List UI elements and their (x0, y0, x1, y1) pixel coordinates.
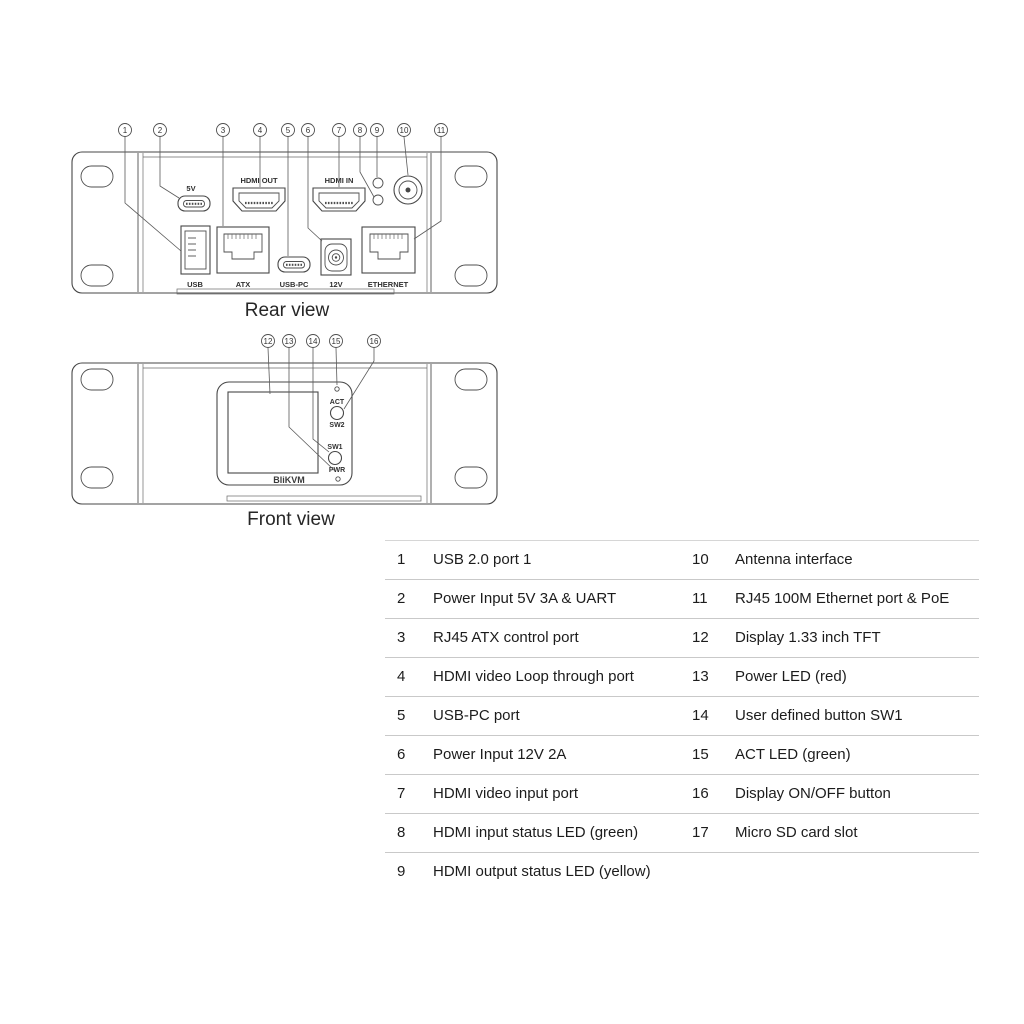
svg-text:1: 1 (123, 126, 128, 135)
display-module: BliKVM ACT SW2 SW1 PWR (217, 382, 352, 485)
legend-num: 3 (385, 629, 433, 647)
legend-table: 1 USB 2.0 port 1 10 Antenna interface 2 … (385, 540, 979, 891)
legend-label: HDMI output status LED (yellow) (433, 863, 692, 881)
legend-label: Display 1.33 inch TFT (735, 629, 979, 647)
legend-label: USB-PC port (433, 707, 692, 725)
legend-row-6: 6 Power Input 12V 2A 15 ACT LED (green) (385, 736, 979, 775)
legend-label: Micro SD card slot (735, 824, 979, 842)
svg-text:9: 9 (375, 126, 380, 135)
legend-label: HDMI input status LED (green) (433, 824, 692, 842)
rear-mount-slot-top-left (81, 166, 113, 187)
legend-row-4: 4 HDMI video Loop through port 13 Power … (385, 658, 979, 697)
hdmi-output-status-led (373, 178, 383, 188)
front-mount-slot-bottom-left (81, 467, 113, 488)
svg-text:3: 3 (221, 126, 226, 135)
pwr-led (336, 477, 340, 481)
legend-num: 10 (692, 551, 735, 569)
legend-label: Antenna interface (735, 551, 979, 569)
svg-text:13: 13 (285, 337, 294, 346)
svg-text:12: 12 (264, 337, 273, 346)
front-mount-slot-bottom-right (455, 467, 487, 488)
legend-num: 8 (385, 824, 433, 842)
rear-leader-lines (125, 137, 441, 256)
front-view-caption: Front view (247, 509, 335, 530)
act-led (335, 387, 339, 391)
antenna-connector (394, 176, 422, 204)
device-diagram: 5V HDMI OUT HDMI IN (0, 0, 1024, 545)
svg-text:14: 14 (309, 337, 318, 346)
usb-pc-label: USB-PC (280, 280, 309, 289)
legend-num: 4 (385, 668, 433, 686)
legend-label: Display ON/OFF button (735, 785, 979, 803)
callout-7: 7 (333, 124, 346, 137)
legend-row-1: 1 USB 2.0 port 1 10 Antenna interface (385, 541, 979, 580)
callout-9: 9 (371, 124, 384, 137)
front-mount-slot-top-left (81, 369, 113, 390)
svg-text:10: 10 (400, 126, 409, 135)
hdmi-out-port: HDMI OUT (233, 176, 285, 211)
usb-a-label: USB (187, 280, 203, 289)
callout-4: 4 (254, 124, 267, 137)
legend-num: 11 (692, 590, 735, 608)
callout-5: 5 (282, 124, 295, 137)
usb-c-5v-port: 5V (178, 184, 210, 211)
svg-text:6: 6 (306, 126, 311, 135)
hdmi-out-label: HDMI OUT (240, 176, 277, 185)
legend-label: RJ45 100M Ethernet port & PoE (735, 590, 979, 608)
svg-text:7: 7 (337, 126, 342, 135)
product-diagram-page: 5V HDMI OUT HDMI IN (0, 0, 1024, 1024)
legend-row-3: 3 RJ45 ATX control port 12 Display 1.33 … (385, 619, 979, 658)
atx-rj45-port: ATX (217, 227, 269, 289)
legend-num: 5 (385, 707, 433, 725)
legend-num: 14 (692, 707, 735, 725)
legend-row-7: 7 HDMI video input port 16 Display ON/OF… (385, 775, 979, 814)
power-12v-label: 12V (329, 280, 342, 289)
legend-row-2: 2 Power Input 5V 3A & UART 11 RJ45 100M … (385, 580, 979, 619)
legend-num: 15 (692, 746, 735, 764)
pwr-label: PWR (329, 467, 345, 474)
legend-row-8: 8 HDMI input status LED (green) 17 Micro… (385, 814, 979, 853)
callout-3: 3 (217, 124, 230, 137)
front-bottom-lip (227, 496, 421, 501)
svg-text:5: 5 (286, 126, 291, 135)
callout-12: 12 (262, 335, 275, 348)
svg-text:11: 11 (437, 126, 446, 135)
ethernet-rj45-port: ETHERNET (362, 227, 415, 289)
legend-label: User defined button SW1 (735, 707, 979, 725)
sw2-label: SW2 (329, 422, 344, 429)
callout-11: 11 (435, 124, 448, 137)
legend-num: 17 (692, 824, 735, 842)
front-callouts: 12 13 14 15 16 (262, 335, 381, 348)
callout-8: 8 (354, 124, 367, 137)
legend-num: 6 (385, 746, 433, 764)
callout-14: 14 (307, 335, 320, 348)
act-label: ACT (330, 399, 345, 406)
callout-2: 2 (154, 124, 167, 137)
svg-text:8: 8 (358, 126, 363, 135)
legend-label: Power LED (red) (735, 668, 979, 686)
legend-num: 13 (692, 668, 735, 686)
usb-c-5v-label: 5V (186, 184, 195, 193)
svg-text:4: 4 (258, 126, 263, 135)
sw1-button (329, 452, 342, 465)
svg-text:15: 15 (332, 337, 341, 346)
legend-label: ACT LED (green) (735, 746, 979, 764)
sw2-button (331, 407, 344, 420)
atx-label: ATX (236, 280, 250, 289)
legend-label: USB 2.0 port 1 (433, 551, 692, 569)
callout-6: 6 (302, 124, 315, 137)
rear-mount-slot-bottom-right (455, 265, 487, 286)
legend-num: 1 (385, 551, 433, 569)
callout-13: 13 (283, 335, 296, 348)
power-12v-jack: 12V (321, 239, 351, 289)
legend-num: 12 (692, 629, 735, 647)
tft-display (228, 392, 318, 473)
front-view-diagram: BliKVM ACT SW2 SW1 PWR 12 13 14 15 16 Fr (72, 335, 497, 531)
svg-text:2: 2 (158, 126, 163, 135)
rear-view-diagram: 5V HDMI OUT HDMI IN (72, 124, 497, 322)
front-leader-lines (268, 348, 374, 471)
legend-label: RJ45 ATX control port (433, 629, 692, 647)
usb-a-port: USB (181, 226, 210, 289)
callout-15: 15 (330, 335, 343, 348)
legend-num: 7 (385, 785, 433, 803)
legend-num: 2 (385, 590, 433, 608)
svg-text:16: 16 (370, 337, 379, 346)
legend-num: 9 (385, 863, 433, 881)
legend-row-9: 9 HDMI output status LED (yellow) (385, 853, 979, 891)
callout-10: 10 (398, 124, 411, 137)
ethernet-label: ETHERNET (368, 280, 409, 289)
rear-view-caption: Rear view (245, 300, 330, 321)
legend-label: Power Input 5V 3A & UART (433, 590, 692, 608)
callout-16: 16 (368, 335, 381, 348)
brand-label: BliKVM (273, 475, 305, 485)
legend-label: Power Input 12V 2A (433, 746, 692, 764)
legend-label: HDMI video Loop through port (433, 668, 692, 686)
sw1-label: SW1 (327, 444, 342, 451)
usb-pc-port: USB-PC (278, 257, 310, 289)
hdmi-input-status-led (373, 195, 383, 205)
legend-label: HDMI video input port (433, 785, 692, 803)
legend-row-5: 5 USB-PC port 14 User defined button SW1 (385, 697, 979, 736)
callout-1: 1 (119, 124, 132, 137)
legend-num: 16 (692, 785, 735, 803)
rear-mount-slot-bottom-left (81, 265, 113, 286)
rear-mount-slot-top-right (455, 166, 487, 187)
front-mount-slot-top-right (455, 369, 487, 390)
rear-callouts: 1 2 3 4 5 6 7 8 9 10 11 (119, 124, 448, 137)
